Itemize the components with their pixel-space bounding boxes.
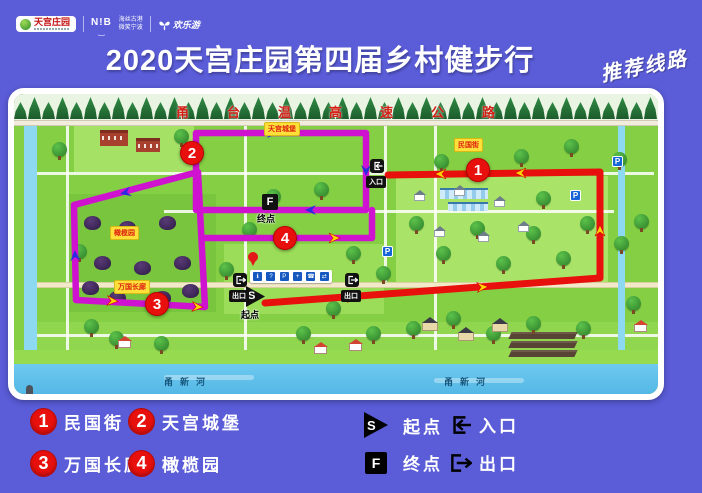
location-pin-icon xyxy=(248,252,258,262)
medical-icon: + xyxy=(293,272,302,281)
slogan-line2: 微笑宁波 xyxy=(119,24,143,32)
fun-tour-text: 欢乐游 xyxy=(173,18,200,31)
legend-item-3: 3 万国长廊 xyxy=(30,450,144,477)
legend-exit: 出口 xyxy=(448,450,519,475)
legend-marker-3: 3 xyxy=(30,450,57,477)
help-icon: ? xyxy=(266,272,275,281)
poster-title: 2020天宫庄园第四届乡村健步行 xyxy=(0,37,640,79)
exit-label: 出口 xyxy=(229,290,249,302)
map-marker-2: 2 xyxy=(180,141,204,165)
tiangong-logo-text: 天宫庄园 xyxy=(34,18,70,27)
tiangong-globe-icon xyxy=(20,19,31,30)
legend-item-1: 1 民国街 xyxy=(30,408,124,435)
nib-logo: N!B ‿ xyxy=(91,13,112,36)
header-logos: 天宫庄园 N!B ‿ 海丝古港 微笑宁波 欢乐游 xyxy=(16,11,200,37)
legend-label-4: 橄榄园 xyxy=(162,451,222,476)
start-point-label: 起点 xyxy=(241,308,259,321)
phone-icon: ☎ xyxy=(306,272,315,281)
tiangong-logo: 天宫庄园 xyxy=(16,16,76,32)
parking-icon: P xyxy=(280,272,289,281)
tag-olive-garden: 橄榄园 xyxy=(110,226,139,240)
fun-tour-logo: 欢乐游 xyxy=(158,18,200,31)
exit-icon xyxy=(345,273,359,287)
entrance-door-icon xyxy=(448,414,472,436)
transfer-icon: ⇄ xyxy=(320,272,329,281)
legend-exit-label: 出口 xyxy=(479,450,519,475)
slogan-line1: 海丝古港 xyxy=(119,16,143,24)
exit-door-icon xyxy=(448,452,472,474)
legend-marker-4: 4 xyxy=(128,450,155,477)
city-slogan: 海丝古港 微笑宁波 xyxy=(119,16,143,33)
poster: 天宫庄园 N!B ‿ 海丝古港 微笑宁波 欢乐游 2020天宫庄园第四届乡村健步… xyxy=(0,0,702,493)
map-marker-3: 3 xyxy=(145,292,169,316)
entrance-label: 入口 xyxy=(366,176,386,188)
butterfly-icon xyxy=(158,20,171,31)
finish-flag-icon: F xyxy=(365,452,387,474)
map-marker-4: 4 xyxy=(273,226,297,250)
entrance-icon xyxy=(370,159,384,173)
exit-icon xyxy=(233,273,247,287)
expressway-label: 甬台温高速公路 xyxy=(176,102,533,121)
park-map: 甬新河 甬新河 甬台温高速公路 xyxy=(8,88,664,400)
legend-entrance: 入口 xyxy=(448,412,519,437)
services-bar: ℹ ? P + ☎ ⇄ xyxy=(250,270,332,283)
pine-tree-icon xyxy=(658,102,664,119)
finish-point-icon: F xyxy=(262,194,278,210)
legend-start: S 起点 xyxy=(364,412,443,438)
tiangong-logo-subline xyxy=(34,28,70,30)
tag-wanguo-corridor: 万国长廊 xyxy=(114,280,150,294)
legend-label-2: 天宫城堡 xyxy=(162,409,242,434)
route-purple-top-loop xyxy=(196,133,366,210)
tag-minguo-street: 民国街 xyxy=(454,138,483,152)
logo-divider xyxy=(83,16,84,32)
legend-entrance-label: 入口 xyxy=(479,412,519,437)
legend-start-label: 起点 xyxy=(403,413,443,438)
nib-logo-text: N!B xyxy=(91,17,112,28)
legend-label-1: 民国街 xyxy=(64,409,124,434)
legend-marker-1: 1 xyxy=(30,408,57,435)
map-marker-1: 1 xyxy=(466,158,490,182)
parking-sign: P xyxy=(612,156,623,167)
legend-finish: F 终点 xyxy=(365,450,443,475)
start-flag-icon: S xyxy=(364,412,388,438)
legend-marker-2: 2 xyxy=(128,408,155,435)
legend-item-4: 4 橄榄园 xyxy=(128,450,222,477)
tag-tiangong-castle: 天宫城堡 xyxy=(264,122,300,136)
exit-label: 出口 xyxy=(341,290,361,302)
logo-divider xyxy=(150,16,151,32)
parking-sign: P xyxy=(382,246,393,257)
info-icon: ℹ xyxy=(253,272,262,281)
smile-icon: ‿ xyxy=(91,28,112,36)
legend-item-2: 2 天宫城堡 xyxy=(128,408,242,435)
parking-sign: P xyxy=(570,190,581,201)
route-overlay xyxy=(14,94,658,394)
finish-point-label: 终点 xyxy=(257,212,275,225)
legend-finish-label: 终点 xyxy=(403,450,443,475)
